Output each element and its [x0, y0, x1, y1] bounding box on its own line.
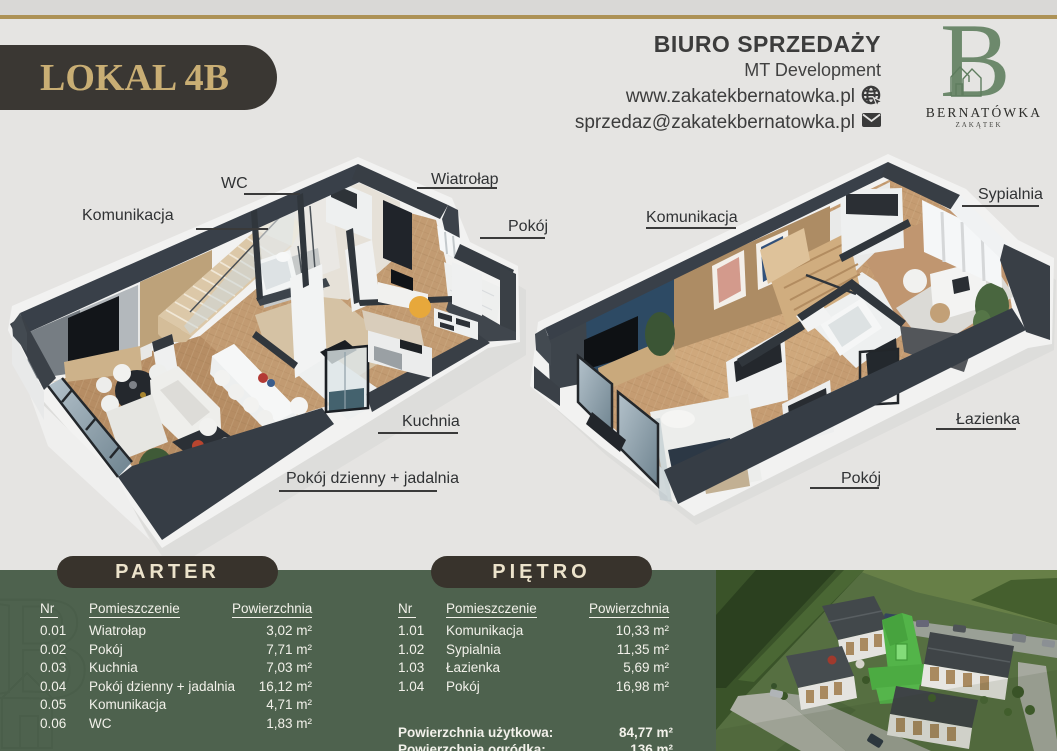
svg-text:B: B	[940, 2, 1011, 119]
